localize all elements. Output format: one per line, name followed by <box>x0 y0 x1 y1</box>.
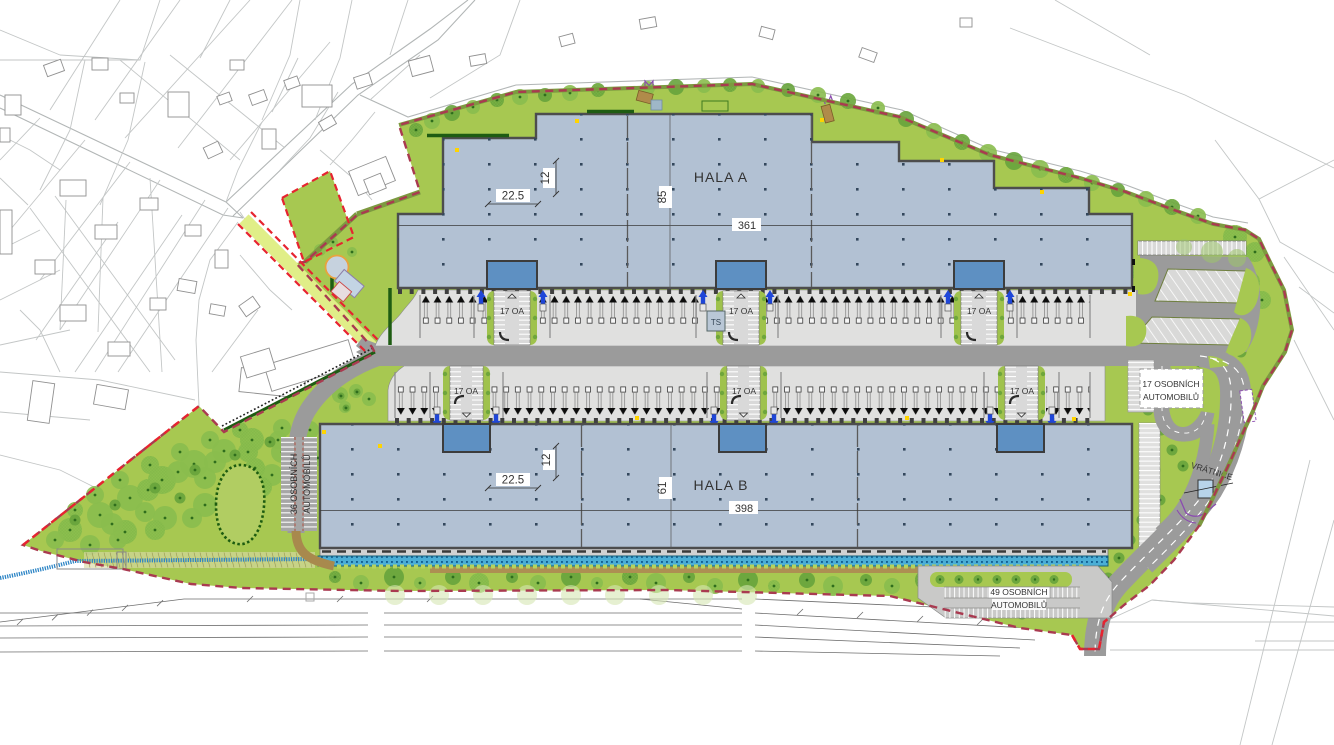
svg-text:17 OA: 17 OA <box>454 386 478 396</box>
svg-text:HALA A: HALA A <box>694 169 748 185</box>
svg-text:22.5: 22.5 <box>502 475 524 487</box>
svg-text:85: 85 <box>657 191 669 204</box>
svg-text:17 OA: 17 OA <box>729 306 753 316</box>
svg-text:12: 12 <box>541 454 553 467</box>
svg-text:22.5: 22.5 <box>502 191 524 203</box>
svg-text:17 OA: 17 OA <box>1010 386 1034 396</box>
svg-text:17 OSOBNÍCH: 17 OSOBNÍCH <box>1142 379 1199 389</box>
svg-text:AUTOMOBILŮ: AUTOMOBILŮ <box>1143 391 1199 402</box>
svg-text:61: 61 <box>657 482 669 495</box>
svg-text:49 OSOBNÍCH: 49 OSOBNÍCH <box>990 587 1047 597</box>
svg-text:361: 361 <box>738 220 756 232</box>
svg-text:36 OSOBNÍCH: 36 OSOBNÍCH <box>289 454 299 515</box>
svg-text:17 OA: 17 OA <box>500 306 524 316</box>
svg-text:12: 12 <box>540 172 552 185</box>
svg-text:AUTOMOBILŮ: AUTOMOBILŮ <box>991 599 1047 610</box>
svg-text:HALA B: HALA B <box>693 477 748 493</box>
svg-text:17 OA: 17 OA <box>732 386 756 396</box>
svg-text:17 OA: 17 OA <box>967 306 991 316</box>
svg-text:AUTOMOBILŮ: AUTOMOBILŮ <box>301 454 312 513</box>
svg-text:398: 398 <box>735 503 753 515</box>
svg-text:TS: TS <box>711 318 721 327</box>
